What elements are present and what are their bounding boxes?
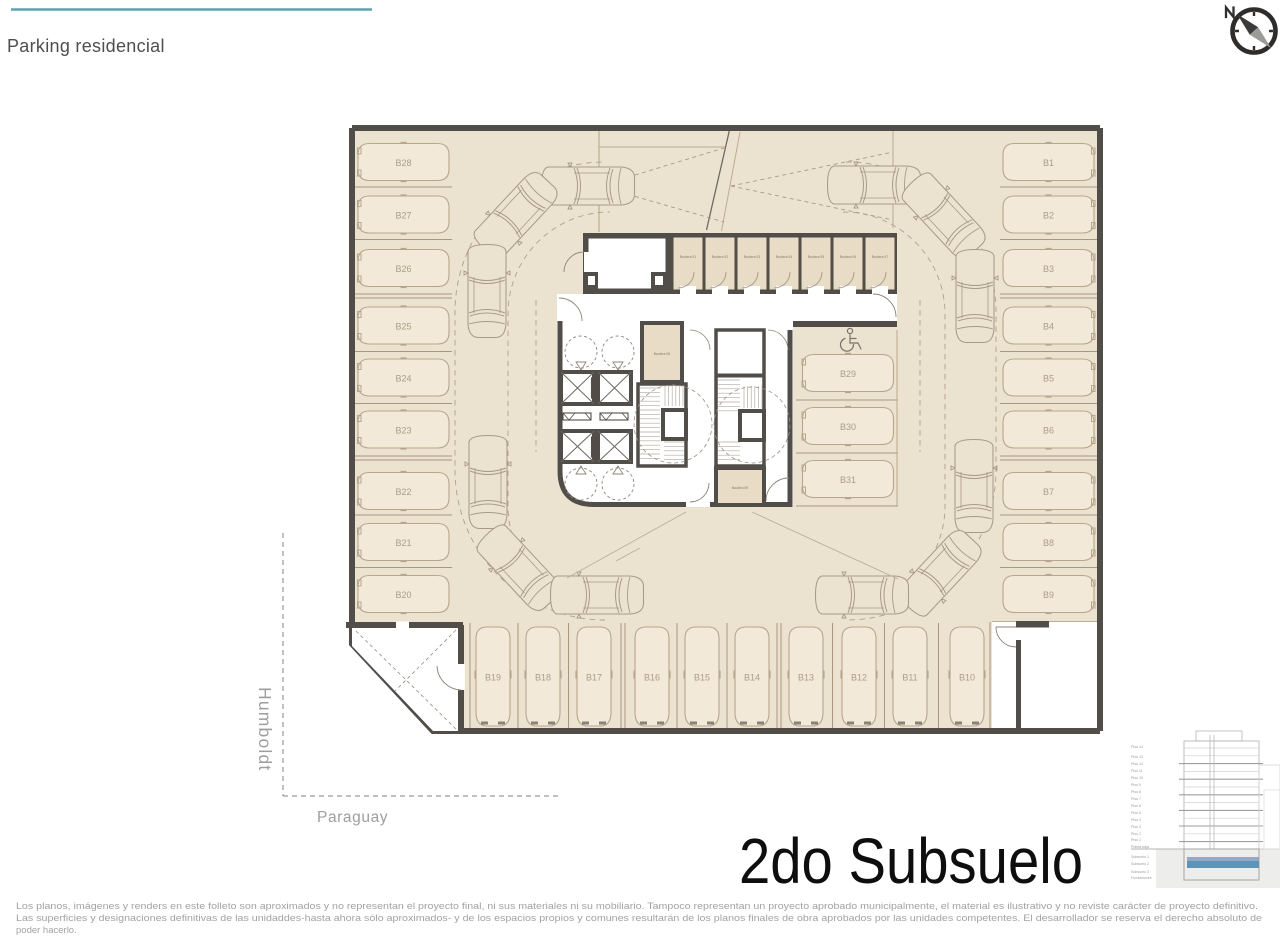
svg-text:B25: B25 (395, 322, 411, 332)
svg-text:Piso 2: Piso 2 (1131, 832, 1141, 836)
svg-text:Piso 10: Piso 10 (1131, 776, 1143, 780)
svg-text:Baulera 01: Baulera 01 (680, 255, 697, 259)
svg-text:B20: B20 (395, 590, 411, 600)
svg-text:B2: B2 (1043, 211, 1054, 221)
svg-text:B22: B22 (395, 487, 411, 497)
svg-text:B1: B1 (1043, 158, 1054, 168)
svg-text:B5: B5 (1043, 374, 1054, 384)
svg-text:B28: B28 (395, 158, 411, 168)
svg-text:Piso 12: Piso 12 (1131, 762, 1143, 766)
svg-text:Baulera 07: Baulera 07 (872, 255, 889, 259)
svg-text:B24: B24 (395, 374, 411, 384)
svg-text:Subsuelo 1: Subsuelo 1 (1131, 855, 1149, 859)
svg-text:B27: B27 (395, 211, 411, 221)
svg-text:B30: B30 (840, 422, 856, 432)
svg-text:Baulera 04: Baulera 04 (776, 255, 793, 259)
svg-text:Piso 8: Piso 8 (1131, 790, 1141, 794)
svg-text:B8: B8 (1043, 538, 1054, 548)
svg-text:Baulera 06: Baulera 06 (840, 255, 857, 259)
svg-text:B9: B9 (1043, 590, 1054, 600)
svg-text:B21: B21 (395, 538, 411, 548)
svg-text:B14: B14 (744, 673, 760, 683)
svg-text:Baulera 02: Baulera 02 (712, 255, 729, 259)
svg-text:Piso 3: Piso 3 (1131, 825, 1141, 829)
svg-text:B7: B7 (1043, 487, 1054, 497)
svg-text:B18: B18 (535, 673, 551, 683)
svg-text:Las superficies y designacione: Las superficies y designaciones definiti… (16, 913, 1262, 924)
svg-text:B29: B29 (840, 369, 856, 379)
svg-text:B16: B16 (644, 673, 660, 683)
svg-text:Paraguay: Paraguay (317, 809, 388, 826)
svg-text:B31: B31 (840, 475, 856, 485)
svg-text:Piso 1: Piso 1 (1131, 838, 1141, 842)
svg-text:B17: B17 (586, 673, 602, 683)
svg-text:Baulera 09: Baulera 09 (732, 486, 749, 490)
svg-text:B23: B23 (395, 426, 411, 436)
svg-text:Piso 5: Piso 5 (1131, 811, 1141, 815)
svg-text:Subsuelo 2: Subsuelo 2 (1131, 862, 1149, 866)
svg-text:Piso 14: Piso 14 (1131, 745, 1143, 749)
svg-text:Los planos, imágenes y renders: Los planos, imágenes y renders en este f… (16, 901, 1258, 912)
svg-text:B12: B12 (851, 673, 867, 683)
svg-text:B11: B11 (902, 673, 917, 683)
svg-text:2do Subsuelo: 2do Subsuelo (739, 825, 1083, 897)
svg-text:Baulera 05: Baulera 05 (808, 255, 825, 259)
svg-text:Piso 4: Piso 4 (1131, 818, 1141, 822)
svg-text:B19: B19 (485, 673, 501, 683)
svg-text:B4: B4 (1043, 322, 1054, 332)
svg-text:poder hacerlo.: poder hacerlo. (16, 925, 77, 936)
svg-text:Parking residencial: Parking residencial (7, 36, 165, 56)
svg-text:Piso 6: Piso 6 (1131, 804, 1141, 808)
svg-text:Piso 13: Piso 13 (1131, 755, 1143, 759)
svg-text:Baulera 03: Baulera 03 (744, 255, 761, 259)
svg-text:Humboldt: Humboldt (255, 687, 275, 772)
svg-text:B3: B3 (1043, 264, 1054, 274)
svg-text:B10: B10 (959, 673, 975, 683)
svg-text:B13: B13 (798, 673, 814, 683)
svg-text:Piso 7: Piso 7 (1131, 797, 1141, 801)
svg-text:B26: B26 (395, 264, 411, 274)
svg-text:Baulera 08: Baulera 08 (654, 352, 671, 356)
svg-text:B6: B6 (1043, 426, 1054, 436)
svg-text:Fundaciones: Fundaciones (1131, 876, 1152, 880)
svg-text:Piso 9: Piso 9 (1131, 783, 1141, 787)
svg-text:Subsuelo 3: Subsuelo 3 (1131, 870, 1149, 874)
svg-text:B15: B15 (694, 673, 710, 683)
svg-text:Piso 11: Piso 11 (1131, 769, 1143, 773)
svg-text:Planta baja: Planta baja (1131, 845, 1149, 849)
